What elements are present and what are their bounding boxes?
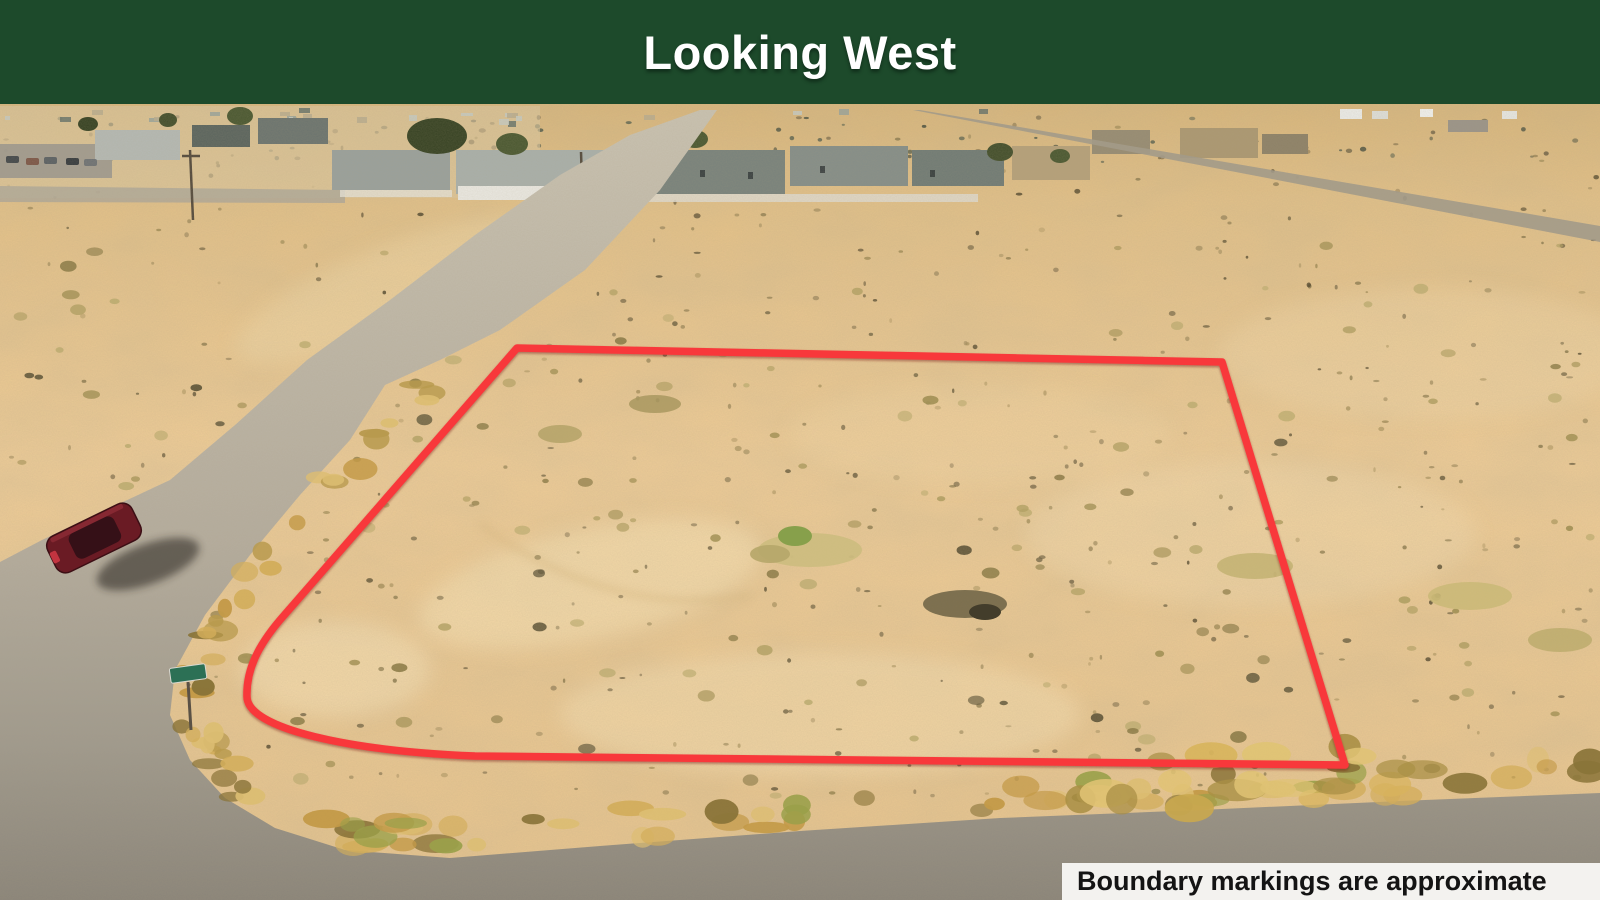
caption-banner: Boundary markings are approximate	[1062, 863, 1600, 900]
page-title: Looking West	[643, 25, 956, 80]
screenshot-root: Looking West	[0, 0, 1600, 900]
aerial-photo-scene	[0, 104, 1600, 900]
header-banner: Looking West	[0, 0, 1600, 104]
aerial-photo	[0, 104, 1600, 900]
caption-text: Boundary markings are approximate	[1077, 866, 1547, 896]
